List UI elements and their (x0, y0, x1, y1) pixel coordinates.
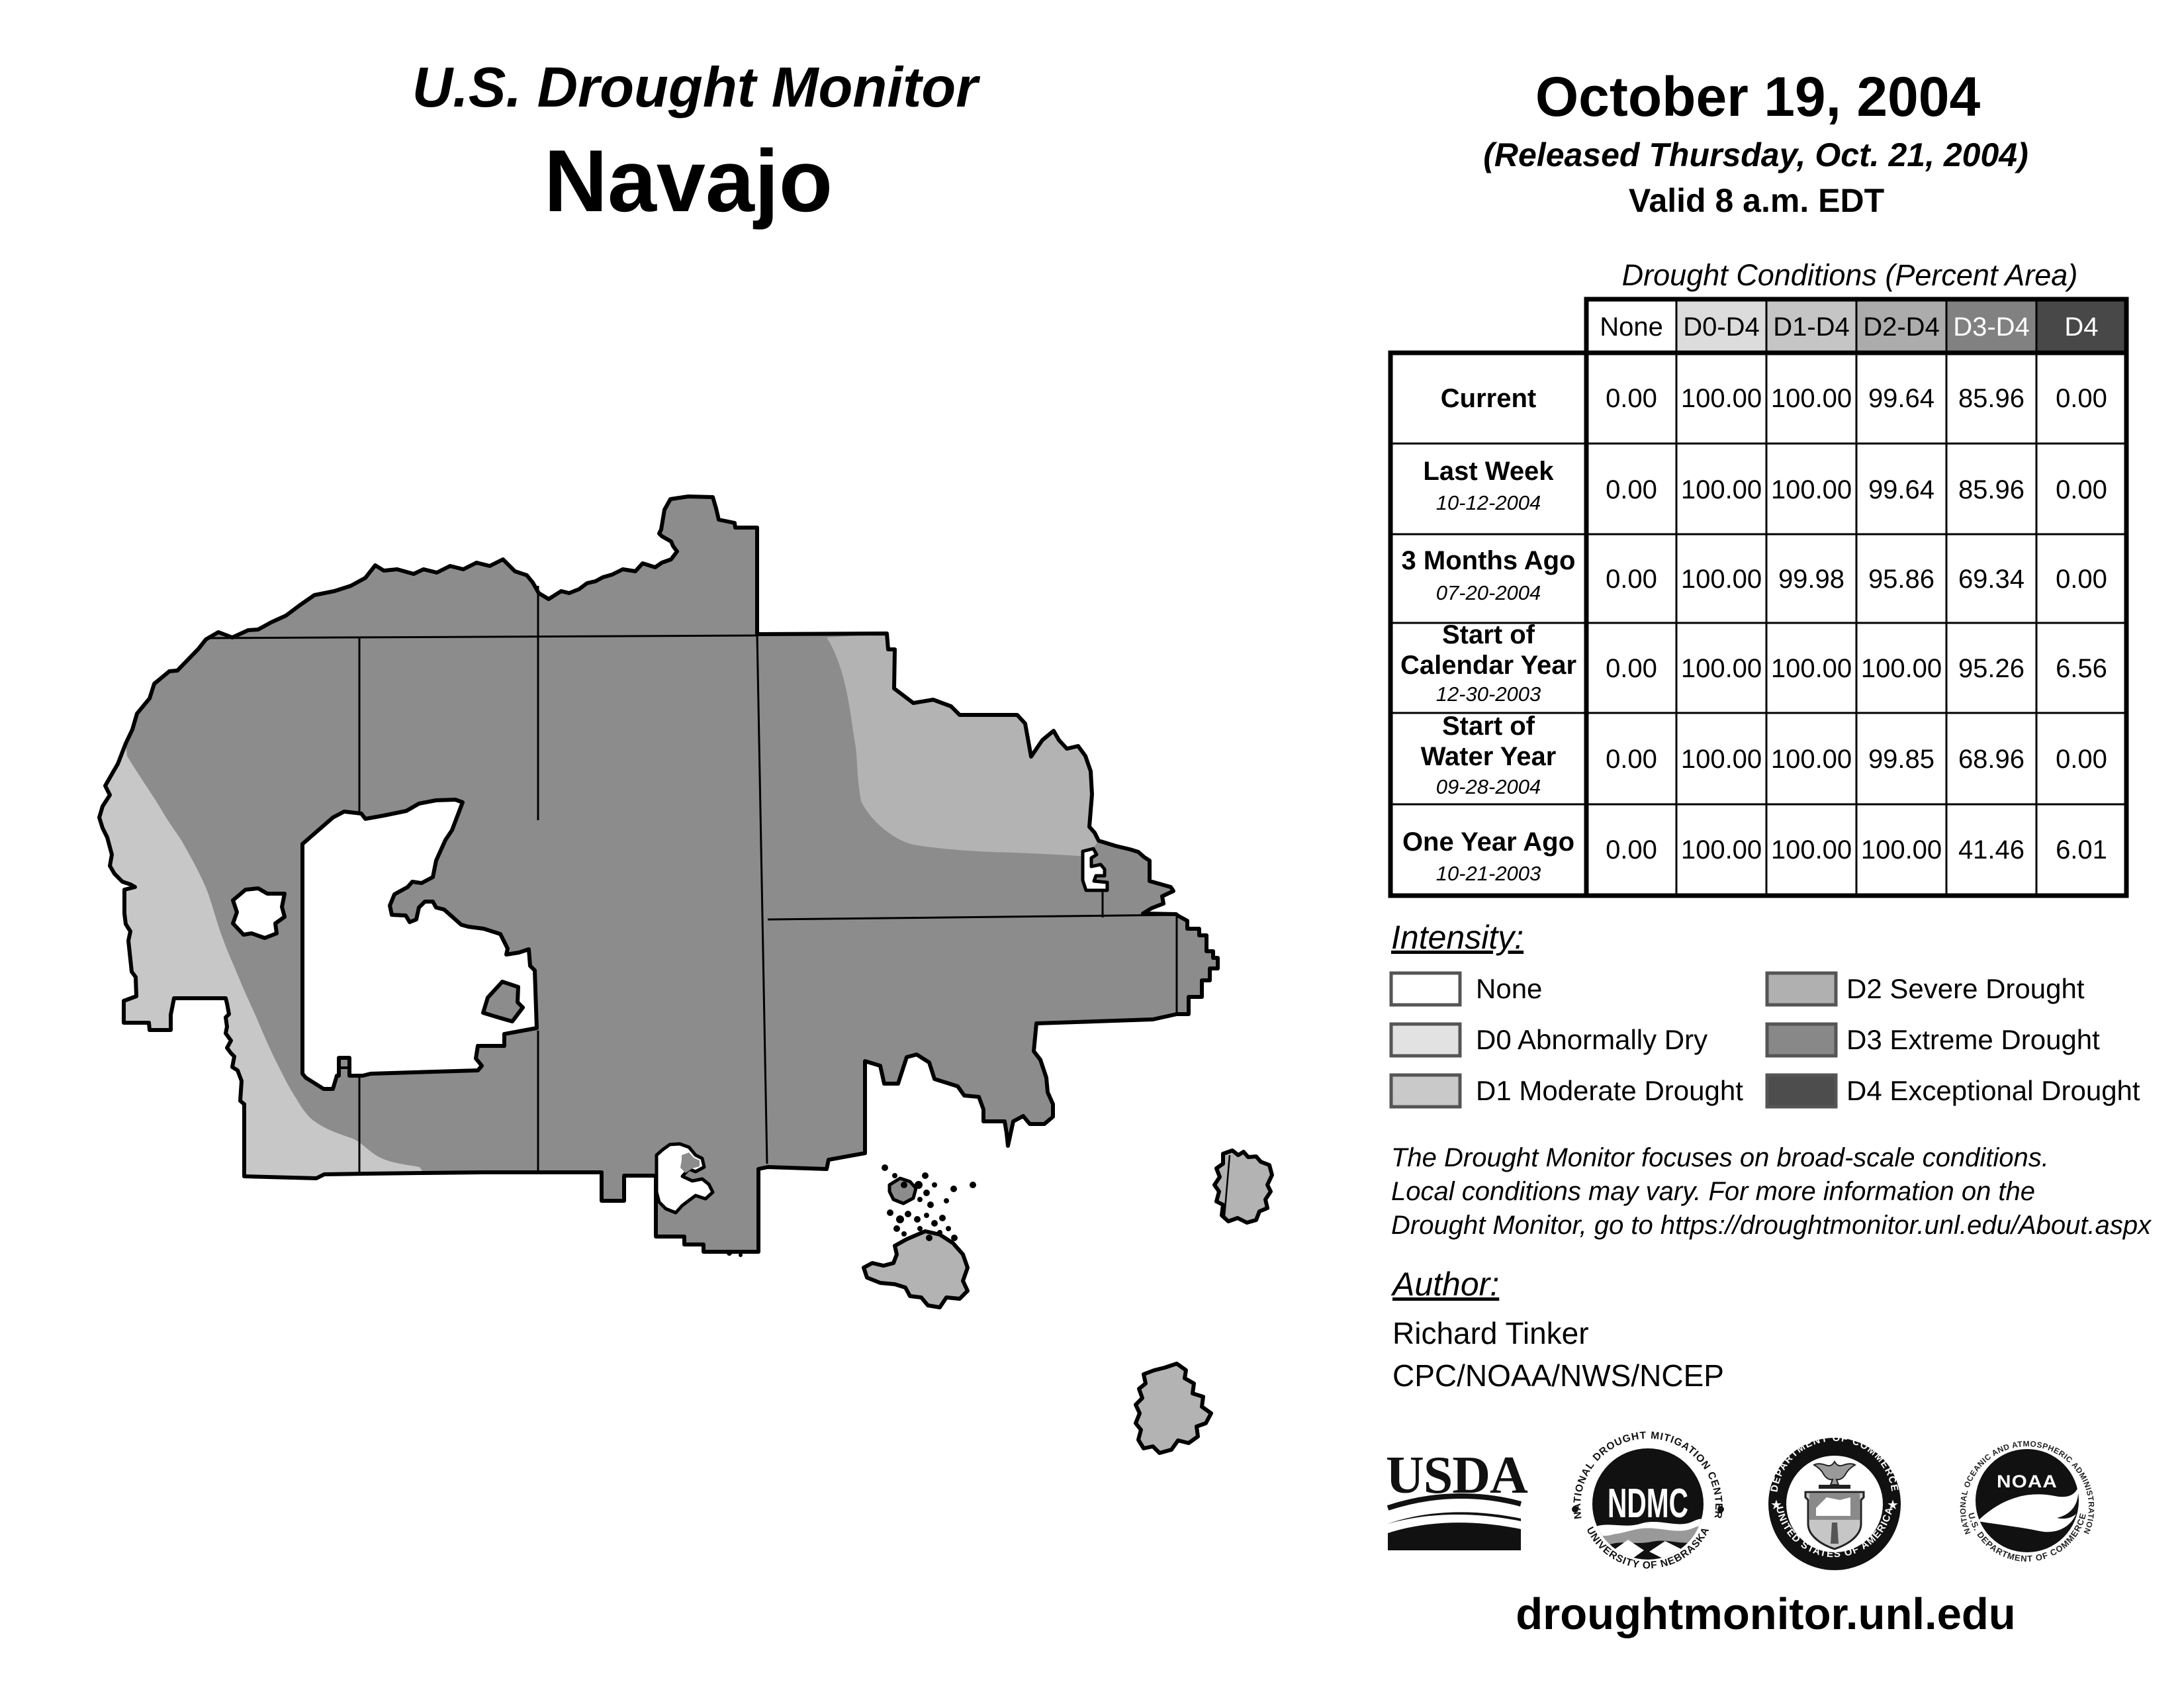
svg-text:D0-D4: D0-D4 (1683, 312, 1760, 342)
svg-text:D1-D4: D1-D4 (1773, 312, 1850, 342)
svg-text:85.96: 85.96 (1958, 384, 2025, 413)
svg-text:85.96: 85.96 (1958, 475, 2025, 504)
svg-text:0.00: 0.00 (2056, 565, 2107, 594)
svg-text:99.64: 99.64 (1868, 384, 1934, 413)
svg-text:100.00: 100.00 (1771, 745, 1852, 774)
svg-text:D0 Abnormally Dry: D0 Abnormally Dry (1476, 1024, 1707, 1055)
svg-text:★: ★ (1887, 1498, 1899, 1513)
svg-text:Water Year: Water Year (1421, 742, 1557, 771)
svg-text:D3 Extreme Drought: D3 Extreme Drought (1846, 1024, 2100, 1055)
svg-text:NOAA: NOAA (1997, 1472, 2058, 1491)
svg-text:One Year Ago: One Year Ago (1402, 827, 1574, 857)
svg-text:99.98: 99.98 (1778, 565, 1844, 594)
svg-text:0.00: 0.00 (2056, 384, 2107, 413)
svg-text:None: None (1600, 312, 1663, 342)
svg-text:95.86: 95.86 (1868, 565, 1934, 594)
svg-text:D4: D4 (2064, 312, 2098, 342)
svg-text:100.00: 100.00 (1681, 475, 1762, 504)
svg-text:6.56: 6.56 (2056, 654, 2107, 683)
svg-text:D2 Severe Drought: D2 Severe Drought (1846, 973, 2085, 1004)
svg-text:100.00: 100.00 (1681, 835, 1762, 865)
svg-text:0.00: 0.00 (1606, 475, 1657, 504)
svg-text:D1 Moderate Drought: D1 Moderate Drought (1476, 1075, 1743, 1106)
svg-text:12-30-2003: 12-30-2003 (1436, 682, 1541, 706)
svg-text:Last Week: Last Week (1423, 457, 1554, 486)
svg-text:68.96: 68.96 (1958, 745, 2025, 774)
svg-text:100.00: 100.00 (1771, 835, 1852, 865)
svg-text:D2-D4: D2-D4 (1863, 312, 1940, 342)
svg-text:99.64: 99.64 (1868, 475, 1934, 504)
svg-text:0.00: 0.00 (1606, 654, 1657, 683)
svg-text:100.00: 100.00 (1681, 384, 1762, 413)
svg-text:100.00: 100.00 (1771, 475, 1852, 504)
svg-text:NDMC: NDMC (1608, 1481, 1688, 1526)
svg-text:0.00: 0.00 (1606, 745, 1657, 774)
svg-text:100.00: 100.00 (1771, 384, 1852, 413)
svg-text:10-21-2003: 10-21-2003 (1436, 862, 1541, 885)
svg-text:100.00: 100.00 (1681, 654, 1762, 683)
svg-text:Start of: Start of (1442, 712, 1535, 741)
svg-text:Start of: Start of (1442, 620, 1535, 649)
svg-text:100.00: 100.00 (1681, 565, 1762, 594)
svg-text:0.00: 0.00 (1606, 835, 1657, 865)
svg-text:95.26: 95.26 (1958, 654, 2025, 683)
svg-text:100.00: 100.00 (1771, 654, 1852, 683)
svg-text:0.00: 0.00 (1606, 384, 1657, 413)
svg-text:6.01: 6.01 (2056, 835, 2107, 865)
svg-text:0.00: 0.00 (2056, 475, 2107, 504)
svg-text:09-28-2004: 09-28-2004 (1436, 775, 1541, 798)
svg-text:Current: Current (1441, 384, 1536, 413)
svg-text:07-20-2004: 07-20-2004 (1436, 581, 1541, 604)
svg-text:0.00: 0.00 (2056, 745, 2107, 774)
svg-text:99.85: 99.85 (1868, 745, 1934, 774)
svg-text:41.46: 41.46 (1958, 835, 2025, 865)
svg-text:None: None (1476, 973, 1542, 1004)
svg-text:★: ★ (1770, 1498, 1782, 1513)
svg-text:100.00: 100.00 (1681, 745, 1762, 774)
svg-text:3 Months Ago: 3 Months Ago (1402, 546, 1576, 575)
svg-text:10-12-2004: 10-12-2004 (1436, 491, 1541, 514)
svg-text:D3-D4: D3-D4 (1953, 312, 2030, 342)
svg-text:D4 Exceptional Drought: D4 Exceptional Drought (1846, 1075, 2140, 1106)
svg-text:Calendar Year: Calendar Year (1400, 651, 1576, 680)
svg-text:69.34: 69.34 (1958, 565, 2025, 594)
svg-text:0.00: 0.00 (1606, 565, 1657, 594)
svg-text:100.00: 100.00 (1861, 835, 1942, 865)
svg-text:100.00: 100.00 (1861, 654, 1942, 683)
